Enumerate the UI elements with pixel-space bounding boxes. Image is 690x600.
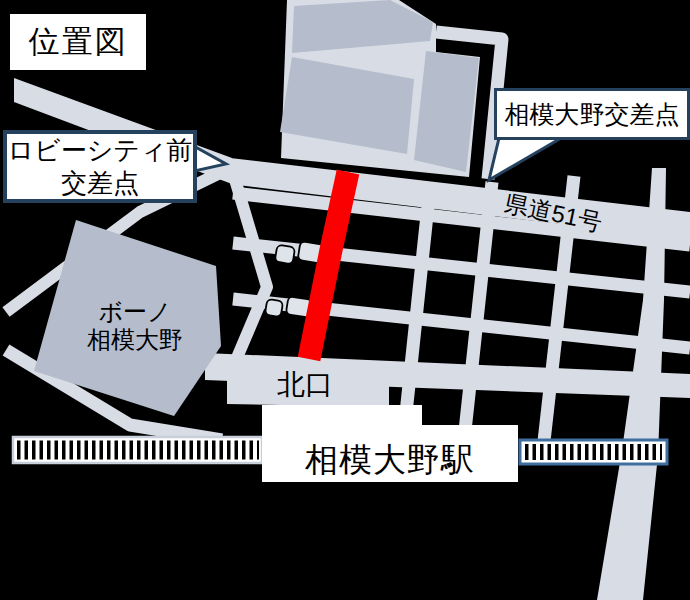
railway-right [520,440,667,464]
label-station-text: 相模大野駅 [305,438,475,483]
callout-lobby-city-line2: 交差点 [61,167,139,200]
callout-tail-sagami-ono [489,134,568,180]
callout-lobby-city-line1: ロビーシティ前 [7,134,192,167]
label-bono-line1: ボーノ [98,298,171,326]
label-bono-line2: 相模大野 [87,326,183,354]
label-north-exit-text: 北口 [277,366,333,404]
railway-left [13,437,262,463]
callout-sagami-ono-intersection: 相模大野交差点 [494,88,690,140]
page-title: 位置図 [8,12,148,72]
label-bono-sagamiono: ボーノ 相模大野 [65,298,205,354]
crosswalk-stub [275,245,295,265]
road-east-of-bono [234,176,267,360]
label-station: 相模大野駅 [262,440,518,480]
label-north-exit: 北口 [255,368,355,402]
callout-sagami-ono-text: 相模大野交差点 [505,98,680,131]
crosswalk-stub [265,299,283,317]
callout-lobby-city-intersection: ロビーシティ前 交差点 [3,130,197,203]
page-title-text: 位置図 [29,21,128,63]
location-map: 位置図 ロビーシティ前 交差点 相模大野交差点 県道51号 ボーノ 相模大野 北… [0,0,690,600]
